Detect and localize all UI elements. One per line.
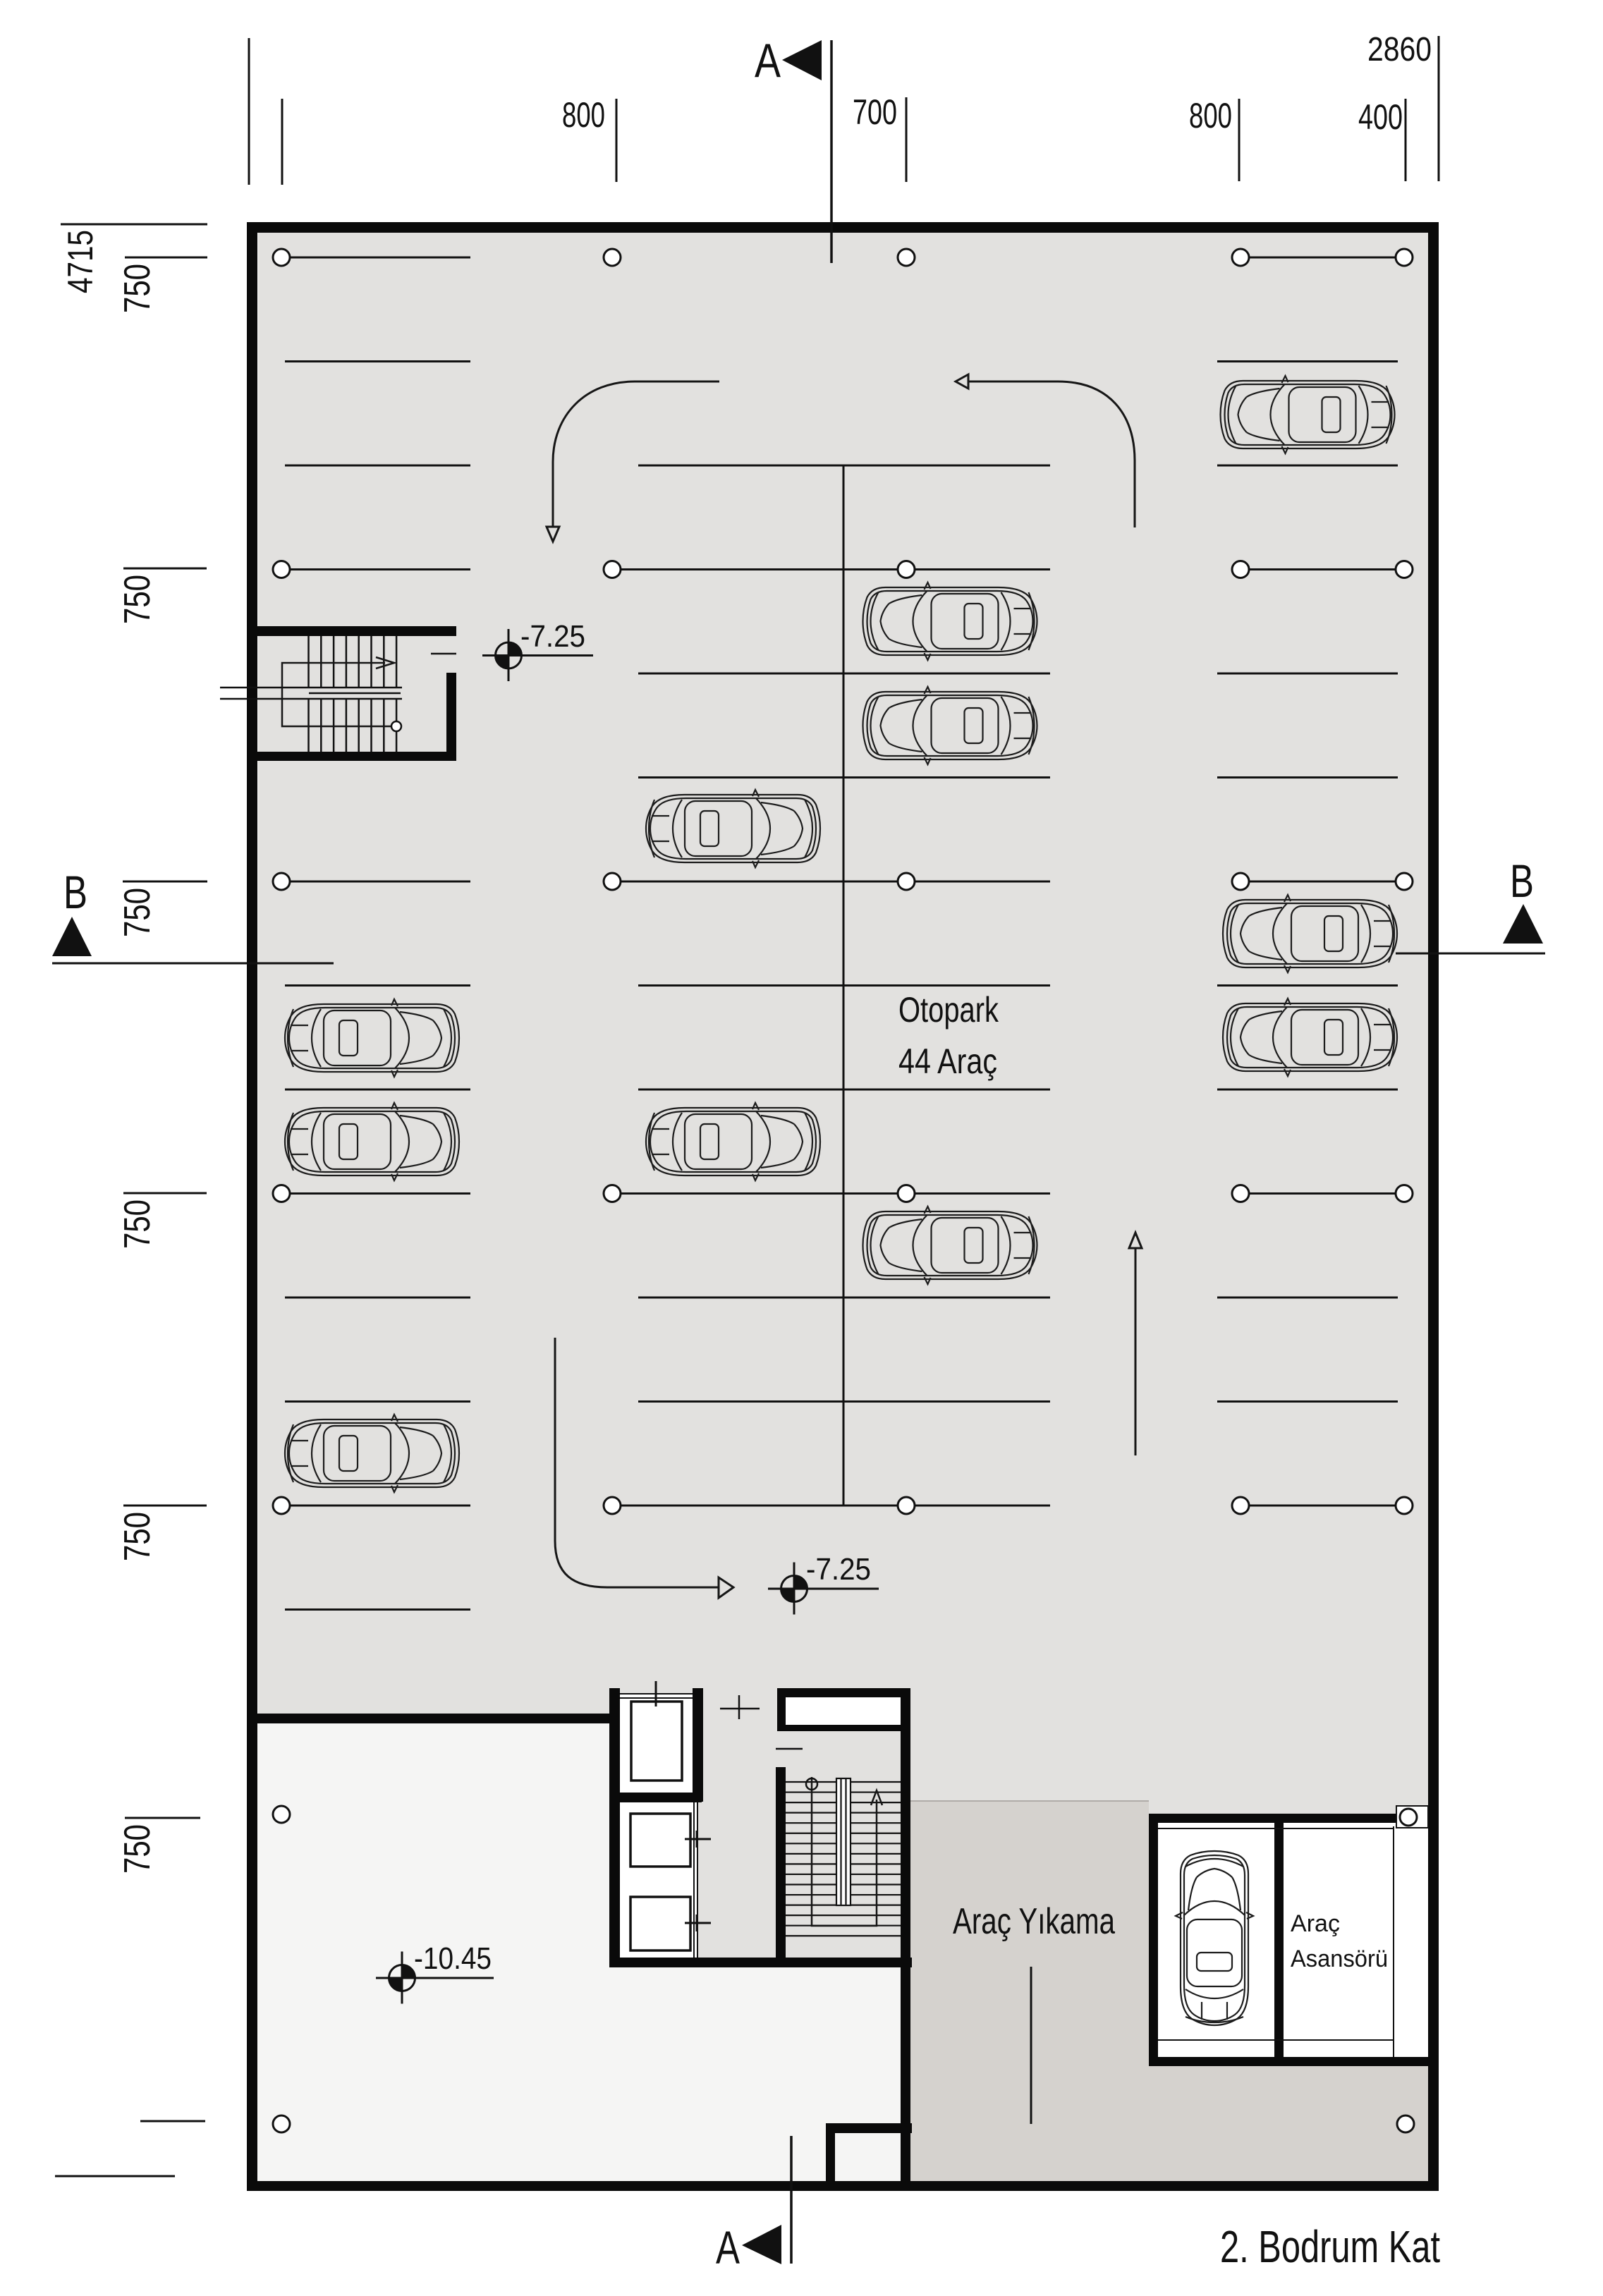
svg-text:Araç Yıkama: Araç Yıkama [953,1901,1115,1942]
svg-text:44 Araç: 44 Araç [898,1042,997,1081]
svg-text:-7.25: -7.25 [520,619,585,654]
svg-text:750: 750 [117,1199,158,1249]
svg-text:750: 750 [117,1512,158,1561]
svg-text:750: 750 [117,575,158,624]
svg-text:A: A [755,34,781,87]
svg-text:750: 750 [117,888,158,937]
svg-text:A: A [716,2221,740,2273]
svg-text:-7.25: -7.25 [806,1552,871,1587]
svg-text:Asansörü: Asansörü [1291,1946,1388,1972]
svg-text:-10.45: -10.45 [414,1941,492,1976]
svg-text:800: 800 [562,95,605,135]
svg-text:B: B [1510,855,1534,907]
svg-text:Araç: Araç [1291,1910,1340,1937]
svg-text:800: 800 [1189,96,1232,135]
svg-text:750: 750 [117,264,158,313]
svg-text:2860: 2860 [1367,31,1432,68]
svg-text:750: 750 [117,1824,158,1874]
svg-text:Otopark: Otopark [898,990,999,1030]
svg-text:400: 400 [1358,97,1403,137]
svg-text:4715: 4715 [61,230,100,293]
svg-text:700: 700 [853,92,897,132]
svg-text:B: B [63,866,87,918]
svg-text:2. Bodrum Kat: 2. Bodrum Kat [1220,2221,1440,2272]
